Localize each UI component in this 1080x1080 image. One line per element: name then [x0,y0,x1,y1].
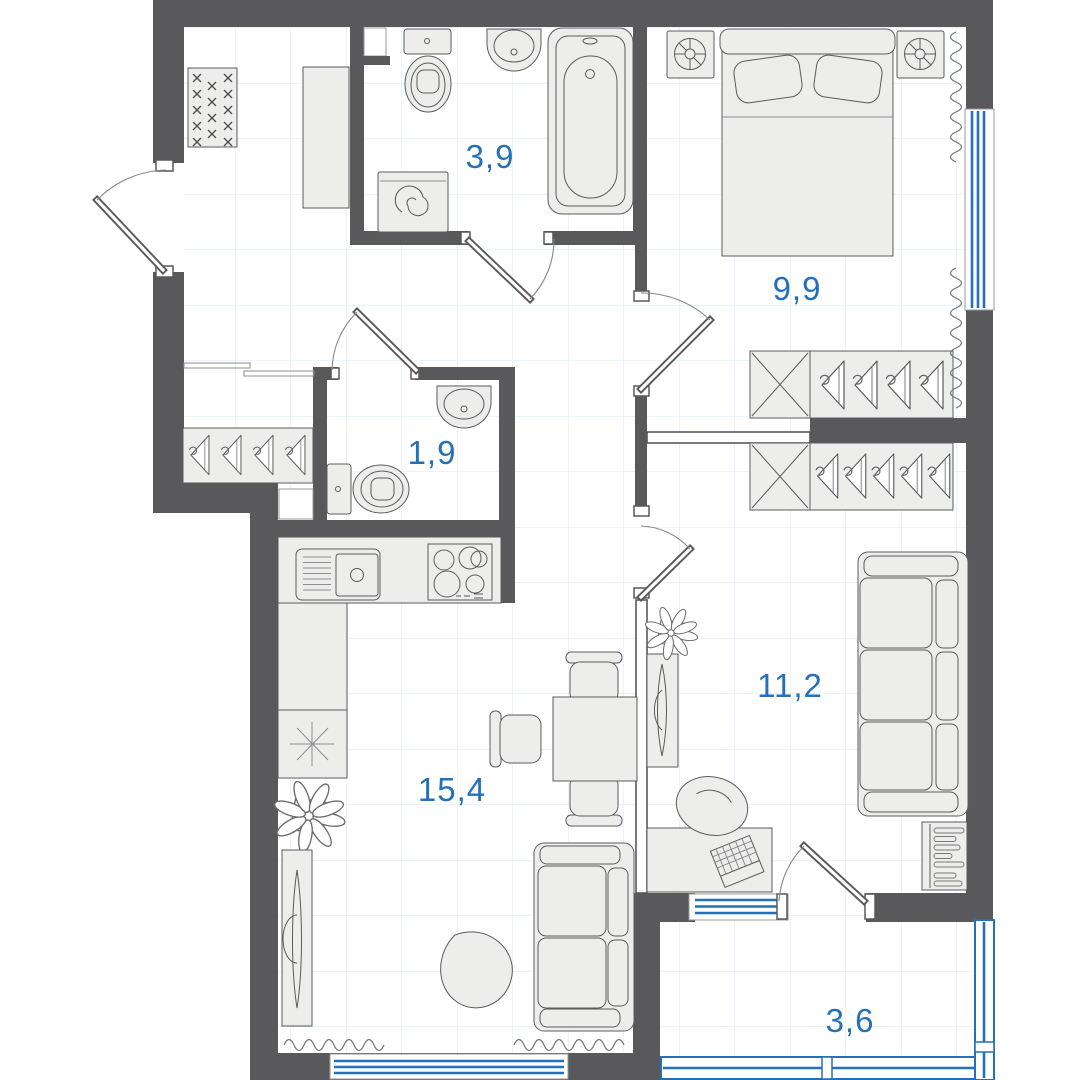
doormat-icon [188,68,237,147]
floor-plan-page: 3,9 9,9 1,9 11,2 15,4 3,6 [0,0,1080,1080]
dining-chair-icon [490,711,541,767]
room-wardrobe-icon [750,443,953,510]
bedroom-window [965,109,994,310]
washing-machine-icon [378,172,448,232]
nightstand-icon [667,31,714,78]
bedroom-wardrobe-icon [750,351,953,418]
bedroom-area-label: 9,9 [773,270,822,307]
tv-stand-icon [282,850,312,1026]
dining-chair-icon [566,652,622,703]
kitchen-sink-icon [296,549,380,600]
pillow-icon [732,54,803,105]
hall-cabinet-icon [303,67,349,208]
bathroom-area-label: 3,9 [466,138,515,175]
wc-area-label: 1,9 [408,434,457,471]
duct-notch-middle [279,489,313,519]
pillow-icon [812,54,883,105]
wc-toilet-icon [327,464,409,514]
sofa-icon [858,552,968,816]
nightstand-icon [897,31,944,78]
bed-icon [720,29,895,256]
living-room-partition [636,600,647,893]
balcony-area-label: 3,6 [826,1002,875,1039]
living-window [330,1054,568,1079]
room-window-radiator [689,894,788,920]
kitchen-living-area-label: 15,4 [418,771,486,808]
fridge-icon [278,710,347,778]
duct-notch-top [364,28,386,56]
entry-door [97,160,173,277]
toilet-icon [404,29,451,112]
bathtub-icon [548,28,633,214]
bedroom-room-partition [647,432,810,443]
sofa-icon [534,843,634,1031]
tv-console-icon [647,654,678,767]
floor-plan: 3,9 9,9 1,9 11,2 15,4 3,6 [0,0,1080,1080]
dining-chair-icon [566,775,622,826]
room-area-label: 11,2 [757,667,823,704]
radiator-icon [922,822,967,890]
dining-table-icon [553,697,637,781]
hall-hanger-rack-icon [183,428,313,483]
